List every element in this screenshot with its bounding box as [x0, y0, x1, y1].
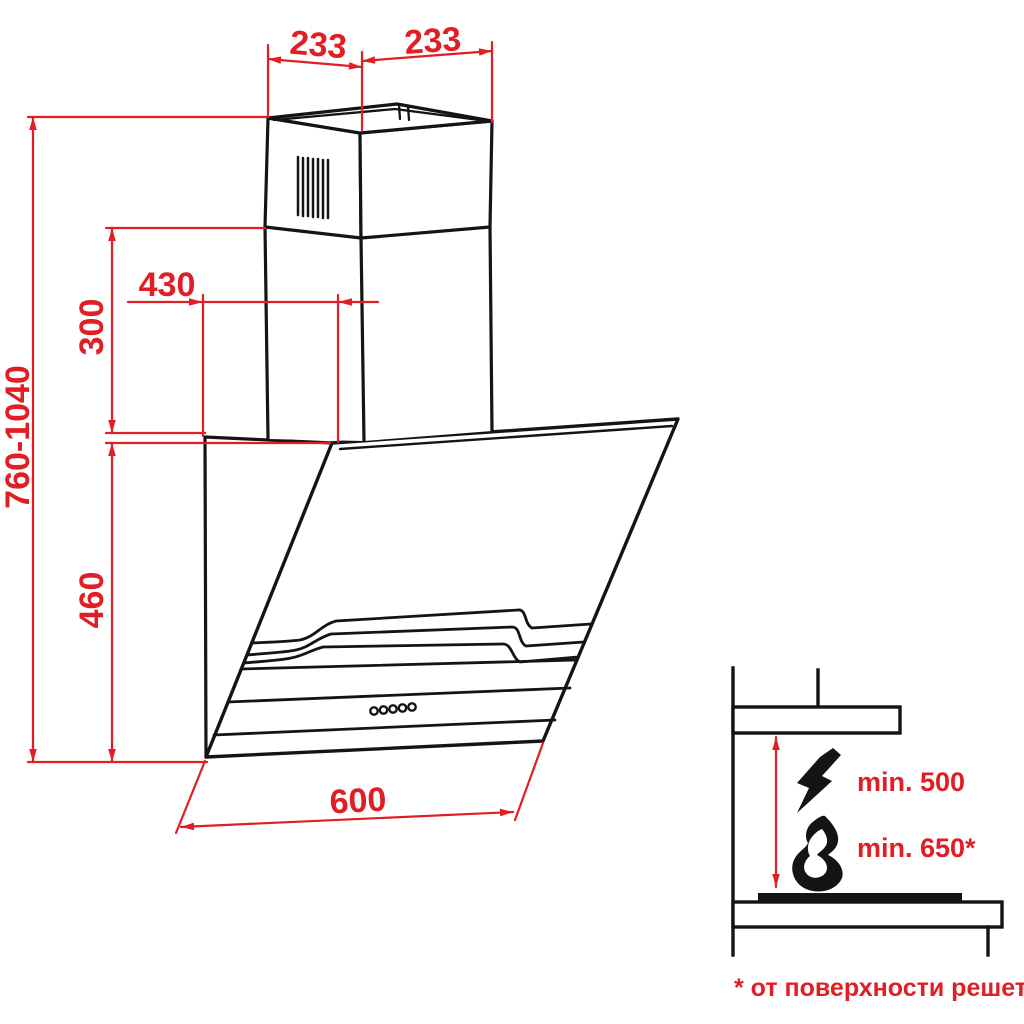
glass-wave-line-4 [241, 660, 577, 669]
hood-side-box [733, 707, 900, 733]
chimney [265, 104, 492, 441]
label-chimney-section: 300 [73, 299, 111, 356]
footnote-text: * от поверхности решеток [734, 974, 1024, 1002]
label-clearance-electric: min. 500 [857, 767, 965, 797]
label-body-height: 460 [73, 572, 111, 629]
dimension-body-height [106, 443, 330, 762]
cooktop-bar [758, 893, 962, 902]
label-depth: 430 [139, 266, 196, 304]
glass-panel-outline [206, 419, 678, 757]
label-duct-left: 233 [288, 24, 348, 67]
label-clearance-gas: min. 650* [857, 833, 976, 863]
control-button [389, 705, 396, 712]
technical-drawing: 233 233 760-1040 300 460 430 600 min. 50… [0, 0, 1024, 1024]
glass-wave-line-1 [252, 610, 591, 643]
control-button [380, 706, 387, 713]
extension-line [515, 743, 543, 820]
label-width: 600 [329, 781, 388, 822]
counter-top [733, 902, 1002, 927]
control-button [408, 703, 415, 710]
label-duct-right: 233 [403, 20, 462, 62]
wall-mount-side-view [733, 668, 1002, 955]
dimension-chimney-section [106, 228, 265, 433]
extension-line [176, 761, 205, 833]
control-button [399, 704, 406, 711]
label-total-height: 760-1040 [0, 365, 37, 509]
control-button [370, 707, 377, 714]
vent-grille [298, 157, 328, 218]
chimney-lower-front-face [265, 227, 364, 441]
control-buttons [370, 703, 415, 714]
chimney-lower-right-face [361, 227, 492, 441]
flame-icon [792, 816, 842, 892]
hood-body [205, 419, 678, 757]
chimney-upper-right-face [360, 121, 492, 238]
body-seam-lower [214, 720, 555, 735]
lightning-icon [797, 748, 841, 813]
installation-drawing-page: 233 233 760-1040 300 460 430 600 min. 50… [0, 0, 1024, 1024]
body-seam-upper [228, 688, 570, 702]
